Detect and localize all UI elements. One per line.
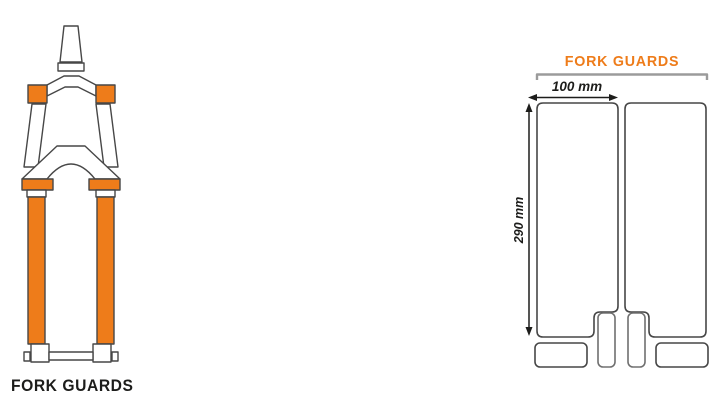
lower-leg-guard-left	[28, 197, 45, 344]
height-dimension-label: 290 mm	[512, 188, 526, 252]
leg-guard-band-right	[89, 179, 120, 190]
seal-collar-left	[27, 190, 46, 197]
width-dimension-label: 100 mm	[536, 79, 618, 94]
strip-guard-left	[598, 313, 615, 367]
fork-illustration-caption: FORK GUARDS	[11, 376, 134, 396]
seal-collar-right	[96, 190, 115, 197]
main-guard-left	[537, 103, 618, 337]
bottom-patch-left	[535, 343, 587, 367]
strip-guard-right	[628, 313, 645, 367]
crown-guard-right	[96, 85, 115, 103]
dropout-left	[31, 344, 49, 362]
height-dimension-arrow	[526, 103, 533, 336]
stanchion-left	[24, 104, 46, 167]
main-guard-right	[625, 103, 706, 337]
axle-tab-right	[112, 352, 118, 361]
axle	[49, 352, 93, 360]
fork-illustration	[22, 26, 120, 362]
crown-guard-left	[28, 85, 47, 103]
leg-guard-band-left	[22, 179, 53, 190]
steerer-tube	[60, 26, 82, 62]
fork-crown	[47, 76, 96, 96]
crown-race	[58, 63, 84, 71]
stanchion-right	[96, 104, 118, 167]
dropout-right	[93, 344, 111, 362]
page: FORK GUARDS FORK GUARDS 100 mm 290 mm	[0, 0, 726, 407]
guard-template-title: FORK GUARDS	[541, 53, 703, 70]
width-dimension-arrow	[528, 94, 618, 101]
bottom-patch-right	[656, 343, 708, 367]
lower-leg-guard-right	[97, 197, 114, 344]
axle-tab-left	[24, 352, 30, 361]
guard-template	[526, 75, 709, 368]
